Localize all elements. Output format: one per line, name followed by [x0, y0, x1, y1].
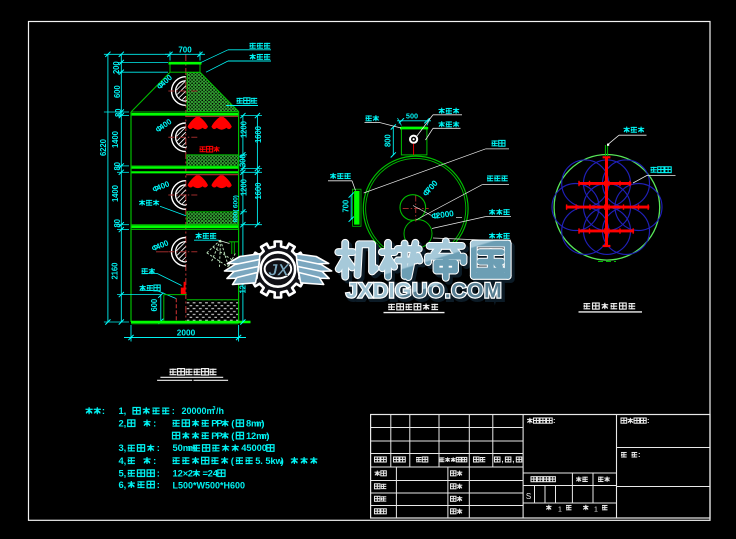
svg-text:.: . [260, 455, 263, 466]
svg-text::: : [172, 405, 175, 416]
svg-text:1: 1 [594, 507, 598, 514]
svg-text:L500*W500*H600: L500*W500*H600 [173, 480, 246, 490]
svg-text:0: 0 [383, 134, 392, 139]
svg-text:): ) [261, 417, 264, 428]
svg-text:0: 0 [112, 61, 121, 66]
svg-text:JXDIGUO.COM: JXDIGUO.COM [346, 279, 502, 302]
svg-text:0: 0 [113, 218, 122, 223]
svg-text:P: P [216, 430, 222, 441]
svg-text::: : [638, 450, 641, 459]
svg-text::: : [153, 417, 156, 428]
svg-text:0: 0 [113, 85, 122, 90]
svg-text:,: , [124, 467, 127, 478]
svg-text:0: 0 [254, 125, 263, 130]
svg-text::: : [647, 416, 650, 425]
svg-text:0: 0 [262, 442, 267, 453]
svg-text:1: 1 [558, 507, 562, 514]
svg-text:0: 0 [99, 138, 108, 143]
svg-text:0: 0 [113, 161, 122, 166]
svg-text:JX: JX [268, 261, 290, 280]
svg-text::: : [157, 442, 160, 453]
svg-text:,: , [124, 455, 127, 466]
svg-text:,: , [124, 442, 127, 453]
svg-text:): ) [281, 455, 284, 466]
svg-text:,: , [124, 405, 127, 416]
svg-text:0: 0 [254, 182, 263, 187]
svg-text:,: , [512, 455, 514, 464]
svg-text::: : [157, 467, 160, 478]
svg-text:S: S [526, 492, 531, 501]
svg-text:0: 0 [240, 178, 249, 183]
svg-text:2: 2 [188, 467, 193, 478]
svg-text::: : [153, 455, 156, 466]
svg-text:): ) [266, 430, 269, 441]
svg-text:0: 0 [341, 199, 350, 204]
svg-text::: : [157, 479, 160, 490]
svg-text::: : [553, 416, 556, 425]
svg-text:,: , [502, 455, 504, 464]
svg-text:,: , [124, 417, 127, 428]
svg-text:2000: 2000 [177, 327, 196, 337]
svg-text:,: , [124, 479, 127, 490]
svg-text:/h: /h [216, 406, 224, 416]
svg-text:0: 0 [239, 154, 248, 159]
svg-text:0: 0 [111, 130, 120, 135]
svg-text:20000m: 20000m [182, 406, 215, 416]
svg-text:0: 0 [114, 108, 123, 113]
svg-text:0: 0 [150, 298, 159, 303]
svg-text:0: 0 [111, 184, 120, 189]
svg-text:0: 0 [111, 262, 120, 267]
svg-text::: : [102, 405, 105, 416]
svg-text:700: 700 [178, 45, 192, 54]
svg-text:): ) [233, 195, 240, 197]
svg-text:500: 500 [406, 112, 418, 121]
svg-text:P: P [216, 417, 222, 428]
svg-text:0: 0 [240, 120, 249, 125]
